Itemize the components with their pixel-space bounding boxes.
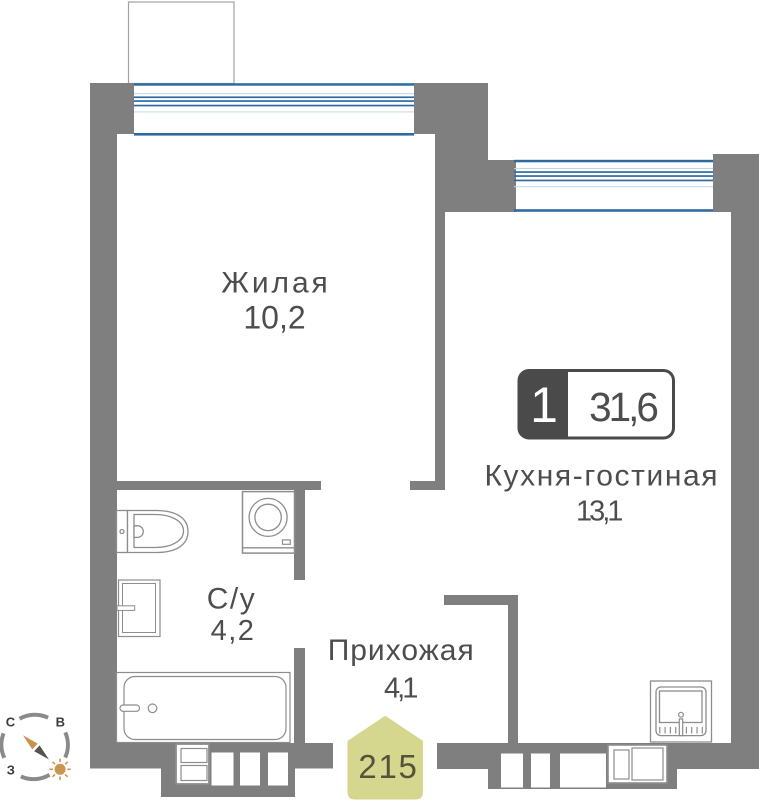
svg-text:З: З — [7, 763, 15, 778]
svg-text:4,2: 4,2 — [211, 615, 256, 647]
svg-text:4,1: 4,1 — [384, 673, 417, 705]
svg-text:С/у: С/у — [207, 582, 257, 615]
svg-text:215: 215 — [358, 748, 418, 785]
svg-text:В: В — [56, 715, 65, 730]
svg-text:1: 1 — [530, 377, 558, 433]
svg-text:Прихожая: Прихожая — [328, 634, 475, 667]
svg-text:Кухня-гостиная: Кухня-гостиная — [484, 460, 719, 493]
svg-text:10,2: 10,2 — [243, 300, 305, 336]
svg-text:31,6: 31,6 — [589, 384, 657, 430]
svg-text:Жилая: Жилая — [221, 267, 330, 300]
svg-text:13,1: 13,1 — [576, 495, 622, 527]
svg-text:С: С — [6, 715, 16, 730]
